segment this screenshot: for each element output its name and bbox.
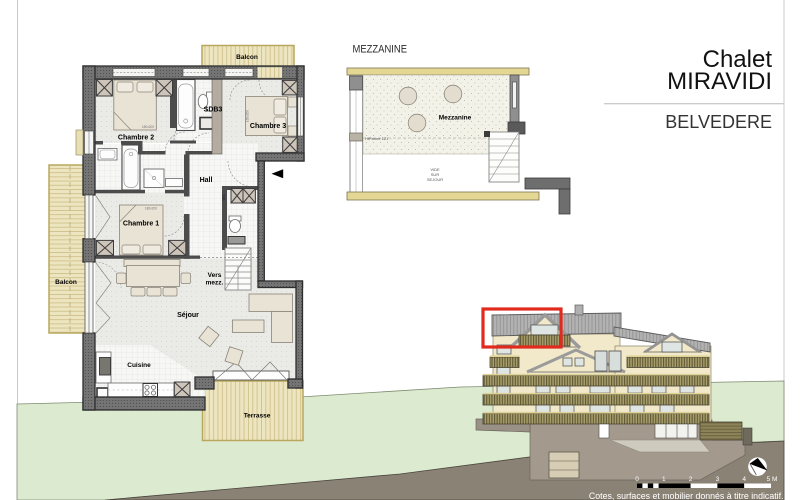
svg-text:Balcon: Balcon (236, 54, 258, 61)
svg-text:180x200: 180x200 (145, 207, 157, 211)
svg-text:MIRAVIDI: MIRAVIDI (667, 68, 772, 95)
svg-text:160x200: 160x200 (246, 110, 250, 122)
svg-text:4: 4 (742, 476, 746, 483)
svg-text:0: 0 (635, 476, 639, 483)
svg-text:Mezzanine: Mezzanine (439, 115, 472, 122)
svg-text:Hall: Hall (200, 177, 213, 184)
svg-text:WC: WC (221, 194, 226, 201)
svg-text:BELVEDERE: BELVEDERE (665, 112, 772, 132)
svg-text:Cuisine: Cuisine (127, 362, 151, 369)
svg-text:1: 1 (662, 476, 666, 483)
svg-text:Cotes, surfaces et mobilier do: Cotes, surfaces et mobilier donnés à tit… (589, 491, 784, 500)
svg-text:Terrasse: Terrasse (244, 413, 271, 420)
svg-text:MEZZANINE: MEZZANINE (353, 44, 408, 56)
svg-text:Chambre 2: Chambre 2 (118, 135, 154, 142)
svg-text:Balcon: Balcon (55, 279, 77, 286)
svg-text:180x200: 180x200 (142, 125, 154, 129)
svg-text:Vers: Vers (208, 272, 222, 279)
svg-text:HtPanne 121: HtPanne 121 (365, 136, 389, 141)
svg-text:2: 2 (689, 476, 693, 483)
svg-text:Chambre 1: Chambre 1 (123, 221, 159, 228)
svg-text:SEJOUR: SEJOUR (427, 177, 443, 182)
svg-text:5 M: 5 M (767, 476, 778, 483)
svg-text:mezz.: mezz. (206, 280, 224, 287)
svg-text:Chambre 3: Chambre 3 (250, 123, 286, 130)
svg-text:3: 3 (716, 476, 720, 483)
svg-text:SDB3: SDB3 (204, 107, 223, 114)
svg-text:Séjour: Séjour (177, 312, 199, 319)
